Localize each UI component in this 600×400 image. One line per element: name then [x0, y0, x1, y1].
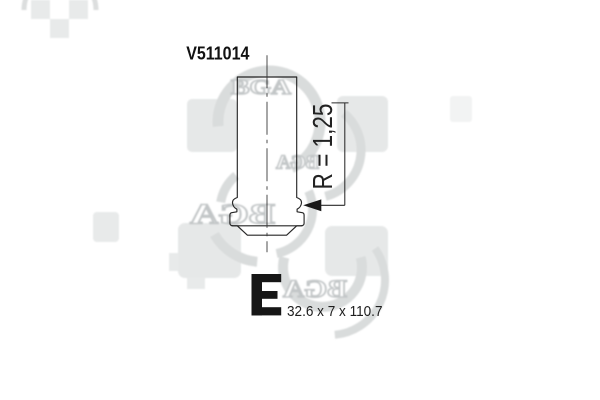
svg-text:V511014: V511014: [186, 43, 250, 64]
svg-text:32.6 x 7 x 110.7: 32.6 x 7 x 110.7: [287, 303, 383, 320]
svg-text:BGA: BGA: [283, 276, 347, 303]
svg-text:R = 1,25: R = 1,25: [307, 104, 338, 190]
svg-text:BGA: BGA: [190, 199, 275, 231]
svg-text:BGA: BGA: [231, 75, 292, 99]
